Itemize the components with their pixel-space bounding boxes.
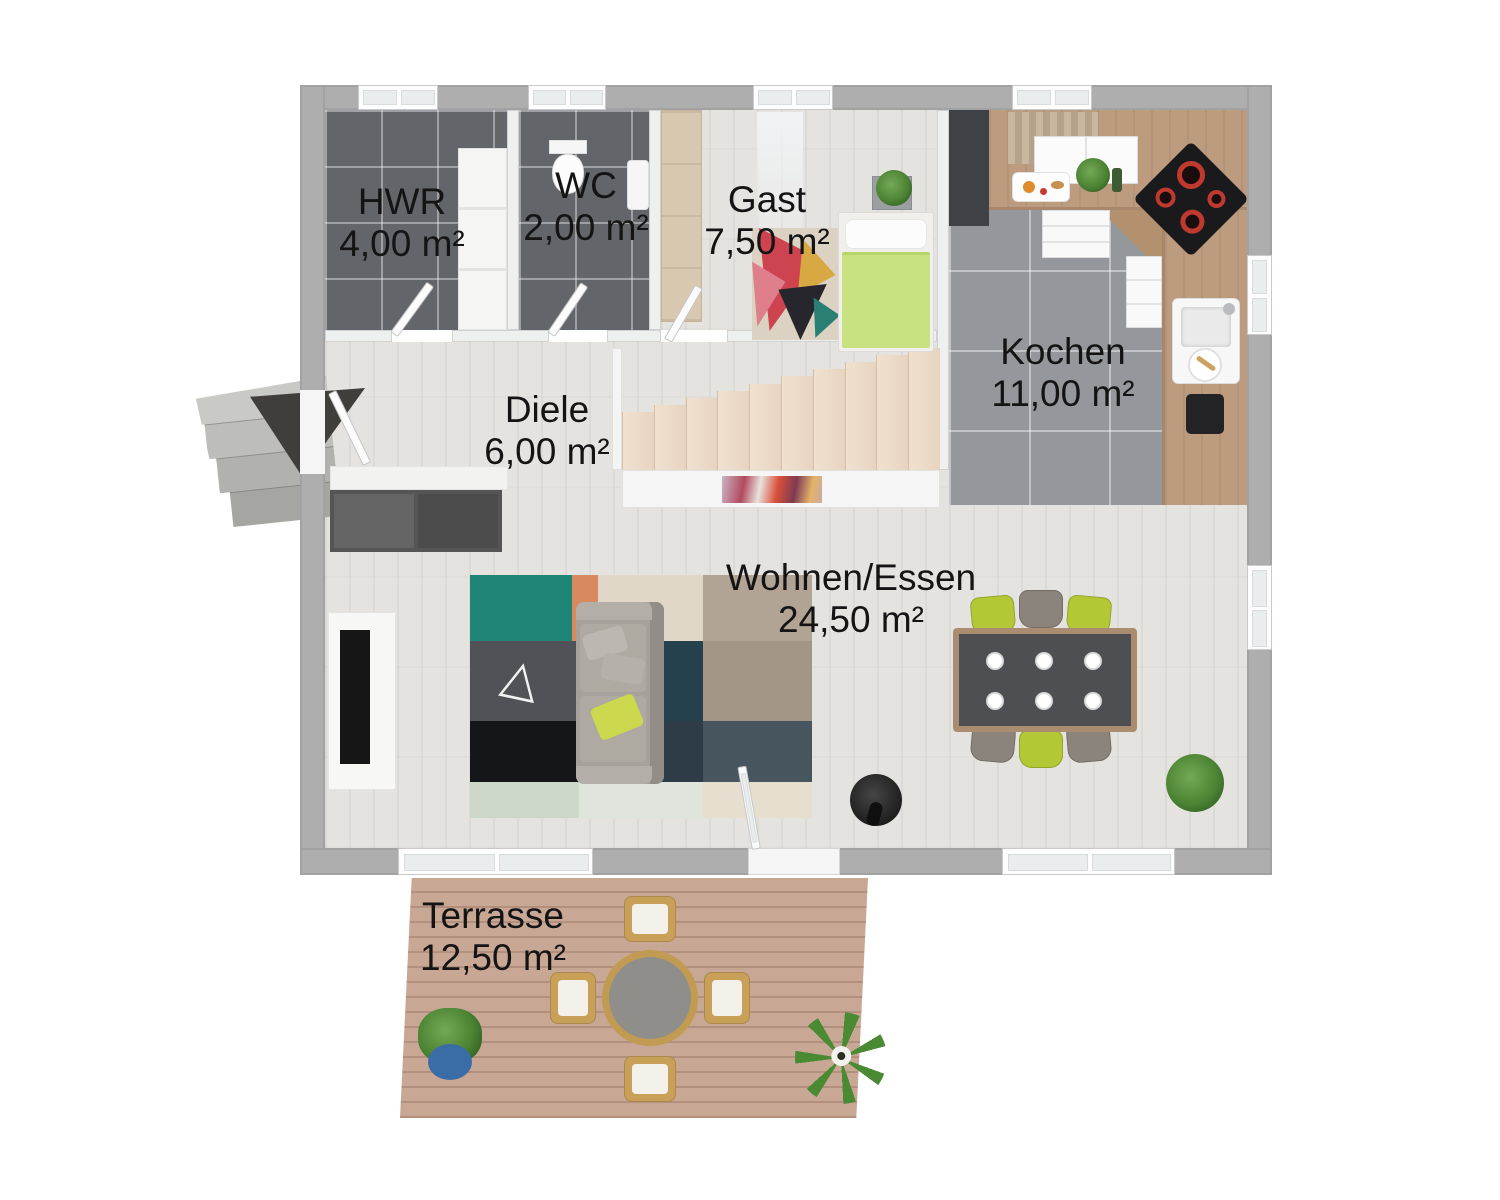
room-label-wohnen-essen: Wohnen/Essen 24,50 m² — [726, 557, 976, 641]
kitchen-counter-plant — [1076, 158, 1110, 192]
hwr-window — [358, 85, 438, 110]
room-name: Kochen — [991, 331, 1134, 373]
dining-window — [1002, 848, 1175, 875]
chair-cushion — [712, 980, 742, 1016]
floor-plan-canvas: △ — [0, 0, 1500, 1200]
food-croissant — [1051, 181, 1064, 189]
rug-patch — [703, 641, 812, 721]
partition-hall-segment — [607, 330, 661, 342]
room-label-kochen: Kochen 11,00 m² — [991, 331, 1134, 415]
stair-tread — [813, 369, 845, 470]
gast-plant — [876, 170, 912, 206]
sofa-backrest — [650, 602, 664, 784]
room-area: 4,00 m² — [339, 223, 464, 265]
stair-tread — [686, 398, 718, 470]
room-area: 2,00 m² — [523, 207, 648, 249]
partition-hwr-wc — [507, 110, 519, 330]
wardrobe-door — [334, 494, 414, 548]
stair-tread — [717, 391, 749, 470]
room-name: Terrasse — [420, 895, 566, 937]
stair-tread — [622, 412, 654, 470]
room-name: Wohnen/Essen — [726, 557, 976, 599]
room-name: HWR — [339, 181, 464, 223]
chair-cushion — [632, 1064, 668, 1094]
room-name: Diele — [484, 389, 609, 431]
toilet-tank — [549, 140, 587, 154]
terrace-chair — [624, 896, 676, 942]
sofa-armrest — [576, 602, 652, 620]
rug-patch — [470, 782, 579, 818]
stair-wall-artwork — [722, 476, 822, 503]
hwr-appliance-counter — [458, 148, 507, 330]
gast-bed-blanket — [842, 252, 930, 348]
kitchen-bottle — [1112, 168, 1122, 192]
room-label-gast: Gast 7,50 m² — [704, 179, 829, 263]
wardrobe-door — [418, 494, 498, 548]
kitchen-sink — [1172, 298, 1240, 384]
hall-wardrobe — [330, 490, 502, 552]
room-area: 12,50 m² — [420, 937, 566, 979]
kitchen-side-window — [1247, 255, 1272, 335]
stair-tread — [654, 405, 686, 470]
wall-right — [1247, 85, 1272, 875]
gast-bed-pillow — [845, 219, 927, 249]
dining-side-window — [1247, 565, 1272, 650]
tv-screen — [340, 630, 370, 764]
rug-patch — [470, 721, 579, 782]
entrance-opening — [300, 390, 325, 474]
terrace-chair — [624, 1056, 676, 1102]
plate — [986, 652, 1004, 670]
dining-chair-lime — [1019, 730, 1063, 768]
sofa — [576, 602, 664, 784]
living-window — [398, 848, 593, 875]
room-label-diele: Diele 6,00 m² — [484, 389, 609, 473]
stair-tread — [781, 376, 813, 470]
room-label-hwr: HWR 4,00 m² — [339, 181, 464, 265]
stair-tread — [845, 362, 877, 470]
living-corner-plant — [1166, 754, 1224, 812]
star-plant-center — [837, 1052, 846, 1061]
cooktop-burner — [1204, 186, 1229, 211]
wc-window — [528, 85, 606, 110]
stair-tread — [876, 355, 908, 470]
terrace-chair — [550, 972, 596, 1024]
room-area: 24,50 m² — [726, 599, 976, 641]
stove-handle — [865, 801, 884, 828]
sofa-armrest — [576, 766, 652, 784]
cooktop-burner — [1151, 183, 1179, 211]
plate — [1084, 652, 1102, 670]
kitchen-drawer-unit — [1042, 210, 1110, 258]
terrace-blue-pot — [428, 1044, 472, 1080]
sink-faucet — [1223, 303, 1235, 315]
kitchen-tall-unit — [949, 110, 989, 226]
cooktop-burner — [1171, 155, 1211, 195]
plate — [1084, 692, 1102, 710]
rug-patch — [703, 721, 812, 782]
stair-spandrel-wall — [612, 348, 622, 470]
chair-cushion — [632, 904, 668, 934]
room-name: Gast — [704, 179, 829, 221]
room-area: 6,00 m² — [484, 431, 609, 473]
partition-wc-gast — [649, 110, 661, 330]
terrace-chair — [704, 972, 750, 1024]
sink-basin — [1181, 307, 1231, 347]
terrace-round-table — [602, 950, 698, 1046]
food-orange — [1023, 181, 1035, 193]
chair-cushion — [558, 980, 588, 1016]
room-area: 7,50 m² — [704, 221, 829, 263]
rug-patch — [703, 782, 812, 818]
kitchen-base-cabinet — [1126, 256, 1162, 328]
food-berry — [1040, 188, 1047, 195]
hall-shelf — [330, 466, 508, 490]
dining-table — [953, 628, 1137, 732]
wood-stove — [850, 774, 902, 826]
dining-chair-gray — [1019, 590, 1063, 628]
room-area: 11,00 m² — [991, 373, 1134, 415]
staircase — [622, 348, 940, 470]
rug-patch — [470, 575, 579, 641]
cooktop-burner — [1175, 205, 1209, 239]
room-name: WC — [523, 165, 648, 207]
stair-tread — [749, 384, 781, 470]
terrace-door-threshold — [748, 848, 840, 875]
stair-tread — [908, 348, 940, 470]
gast-window — [753, 85, 833, 110]
star-plant-flower — [830, 1045, 853, 1068]
rug-patch — [579, 782, 702, 818]
room-label-wc: WC 2,00 m² — [523, 165, 648, 249]
plate — [986, 692, 1004, 710]
kitchen-breakfast-tray — [1012, 172, 1070, 202]
plate — [1035, 652, 1053, 670]
coffee-machine — [1186, 394, 1224, 434]
wall-left — [300, 85, 325, 875]
plate — [1035, 692, 1053, 710]
partition-hall-segment — [452, 330, 549, 342]
room-label-terrasse: Terrasse 12,50 m² — [420, 895, 566, 979]
partition-hall-segment — [325, 330, 392, 342]
kitchen-window — [1012, 85, 1092, 110]
